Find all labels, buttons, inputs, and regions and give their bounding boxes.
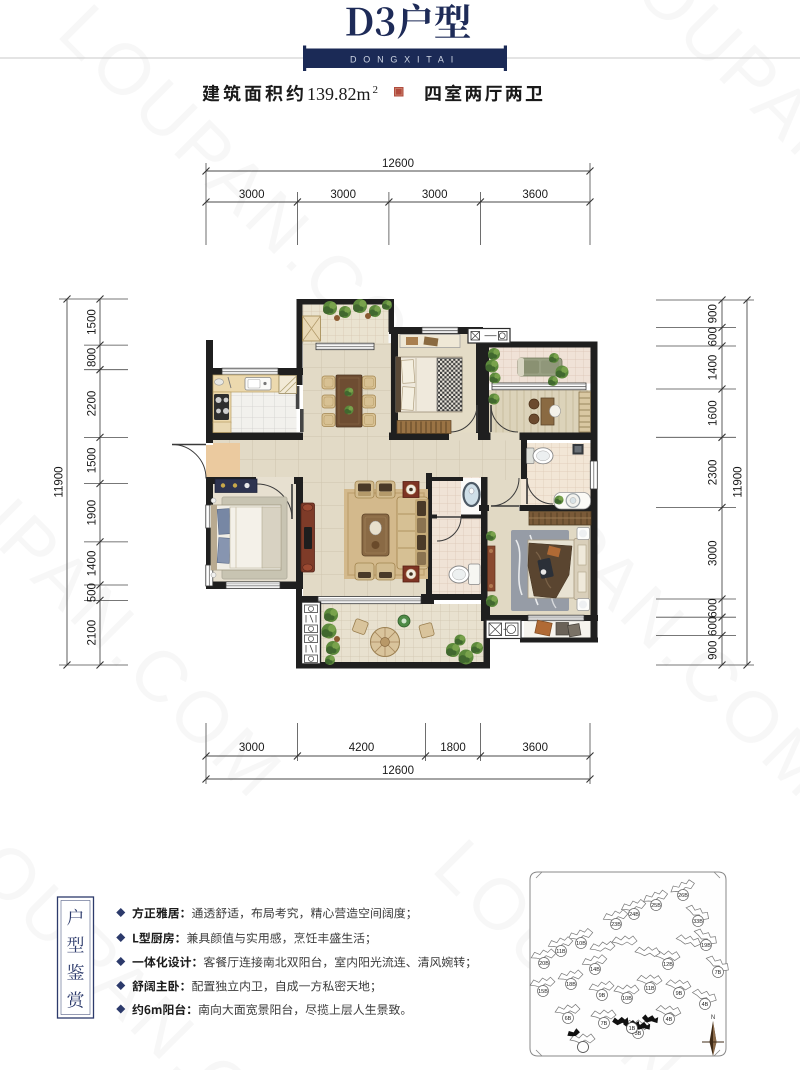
svg-text:N: N bbox=[711, 1015, 715, 1021]
svg-text:25B: 25B bbox=[651, 903, 661, 909]
svg-text:500: 500 bbox=[87, 583, 99, 602]
svg-text:1500: 1500 bbox=[87, 309, 99, 335]
svg-text:2300: 2300 bbox=[708, 460, 720, 486]
svg-text:4B: 4B bbox=[666, 1017, 673, 1023]
svg-text:1900: 1900 bbox=[87, 500, 99, 526]
svg-text:12600: 12600 bbox=[382, 158, 414, 170]
svg-text:33B: 33B bbox=[693, 919, 703, 925]
svg-text:18B: 18B bbox=[566, 982, 576, 988]
svg-text:11900: 11900 bbox=[54, 466, 66, 497]
svg-text:3000: 3000 bbox=[239, 742, 265, 754]
svg-text:4200: 4200 bbox=[349, 742, 375, 754]
svg-text:DONGXITAI: DONGXITAI bbox=[350, 55, 460, 65]
svg-text:3000: 3000 bbox=[708, 540, 720, 566]
svg-text:LOUPAN.COM: LOUPAN.COM bbox=[0, 795, 359, 1070]
svg-text:600: 600 bbox=[708, 327, 720, 346]
svg-text:26B: 26B bbox=[678, 893, 688, 899]
svg-text:3000: 3000 bbox=[422, 189, 448, 201]
svg-text:2200: 2200 bbox=[87, 391, 99, 417]
svg-text:6B: 6B bbox=[565, 1016, 572, 1022]
svg-text:12B: 12B bbox=[663, 962, 673, 968]
svg-text:LOUPAN.COM: LOUPAN.COM bbox=[589, 0, 800, 345]
svg-text:3600: 3600 bbox=[522, 742, 548, 754]
svg-text:20B: 20B bbox=[539, 961, 549, 967]
svg-text:1B: 1B bbox=[629, 1026, 636, 1032]
svg-text:7B: 7B bbox=[715, 970, 722, 976]
svg-text:24B: 24B bbox=[629, 912, 639, 918]
svg-text:7B: 7B bbox=[601, 1021, 608, 1027]
svg-text:23B: 23B bbox=[611, 922, 621, 928]
svg-text:15B: 15B bbox=[538, 989, 548, 995]
svg-text:1800: 1800 bbox=[440, 742, 466, 754]
svg-text:600: 600 bbox=[708, 599, 720, 618]
svg-text:1600: 1600 bbox=[708, 400, 720, 426]
svg-text:600: 600 bbox=[708, 617, 720, 636]
svg-text:12600: 12600 bbox=[382, 765, 414, 777]
svg-text:900: 900 bbox=[708, 641, 720, 660]
svg-text:14B: 14B bbox=[590, 967, 600, 973]
svg-text:2: 2 bbox=[373, 84, 379, 96]
svg-text:11B: 11B bbox=[556, 949, 566, 955]
svg-text:4B: 4B bbox=[702, 1002, 709, 1008]
svg-text:1400: 1400 bbox=[87, 551, 99, 577]
svg-text:139.82m: 139.82m bbox=[307, 84, 371, 104]
svg-text:11900: 11900 bbox=[733, 466, 745, 497]
svg-text:1400: 1400 bbox=[708, 355, 720, 381]
svg-text:3000: 3000 bbox=[330, 189, 356, 201]
svg-text:900: 900 bbox=[708, 304, 720, 323]
svg-text:11B: 11B bbox=[645, 986, 655, 992]
svg-text:9B: 9B bbox=[676, 991, 683, 997]
svg-text:10B: 10B bbox=[622, 996, 632, 1002]
svg-text:19B: 19B bbox=[701, 943, 711, 949]
svg-text:9B: 9B bbox=[599, 993, 606, 999]
svg-text:2100: 2100 bbox=[87, 620, 99, 646]
svg-text:10B: 10B bbox=[576, 941, 586, 947]
svg-text:3000: 3000 bbox=[239, 189, 265, 201]
svg-text:1500: 1500 bbox=[87, 448, 99, 474]
svg-text:800: 800 bbox=[87, 348, 99, 367]
svg-text:3600: 3600 bbox=[522, 189, 548, 201]
